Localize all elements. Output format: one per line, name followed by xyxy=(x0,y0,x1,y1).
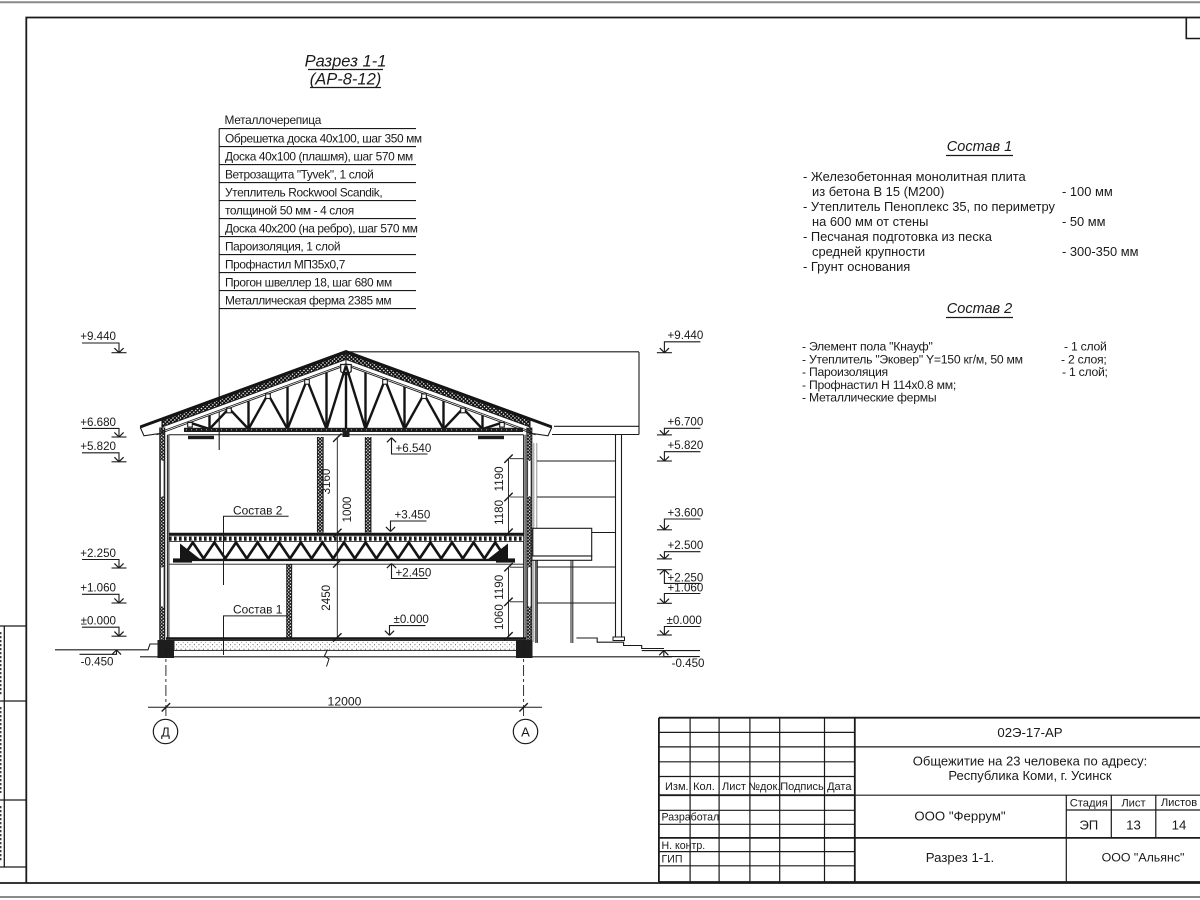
svg-text:1190: 1190 xyxy=(493,575,506,600)
svg-text:+2.250: +2.250 xyxy=(80,547,116,560)
svg-text:-0.450: -0.450 xyxy=(81,655,114,668)
svg-text:-0.450: -0.450 xyxy=(672,657,705,670)
svg-text:ООО "Альянс": ООО "Альянс" xyxy=(1102,851,1185,865)
svg-text:- Железобетонная монолитная п: - Железобетонная монолитная плита xyxy=(803,169,1027,184)
svg-text:№док.: №док. xyxy=(748,781,780,793)
svg-text:Дата: Дата xyxy=(827,781,852,793)
svg-text:+6.700: +6.700 xyxy=(668,416,704,429)
svg-text:Разрез 1-1.: Разрез 1-1. xyxy=(926,850,994,865)
svg-text:13: 13 xyxy=(1126,818,1141,833)
svg-text:Подпись: Подпись xyxy=(780,781,824,793)
svg-text:02Э-17-АР: 02Э-17-АР xyxy=(997,725,1062,740)
svg-text:+9.440: +9.440 xyxy=(80,330,116,343)
svg-text:Доска 40х200 (на ребро), шаг 5: Доска 40х200 (на ребро), шаг 570 мм xyxy=(225,221,418,235)
svg-text:Лист: Лист xyxy=(722,781,746,793)
svg-text:ЭП: ЭП xyxy=(1079,818,1098,833)
svg-text:толщиной 50 мм - 4 слоя: толщиной 50 мм - 4 слоя xyxy=(225,203,354,217)
svg-text:±0.000: ±0.000 xyxy=(394,613,429,626)
svg-text:Н. контр.: Н. контр. xyxy=(662,840,706,852)
svg-text:+1.060: +1.060 xyxy=(668,582,704,595)
svg-text:12000: 12000 xyxy=(328,695,362,709)
svg-text:- Утеплитель Пеноплекс 35, по: - Утеплитель Пеноплекс 35, по периметру xyxy=(803,199,1056,214)
svg-text:Профнастил МП35х0,7: Профнастил МП35х0,7 xyxy=(225,257,346,271)
svg-text:Утеплитель Rockwool Scandik,: Утеплитель Rockwool Scandik, xyxy=(225,185,382,199)
svg-text:Лист: Лист xyxy=(1121,798,1145,810)
svg-text:(АР-8-12): (АР-8-12) xyxy=(310,71,382,89)
svg-text:Доска 40х100 (плашмя), шаг 570: Доска 40х100 (плашмя), шаг 570 мм xyxy=(225,149,413,163)
svg-text:из бетона В 15 (М200): из бетона В 15 (М200) xyxy=(812,184,944,199)
svg-text:Изм.: Изм. xyxy=(665,781,689,793)
svg-text:1180: 1180 xyxy=(493,500,506,525)
svg-text:Д: Д xyxy=(161,724,170,739)
svg-text:2450: 2450 xyxy=(320,585,333,611)
svg-text:Обрешетка доска 40х100, шаг 35: Обрешетка доска 40х100, шаг 350 мм xyxy=(225,131,422,145)
svg-text:+2.500: +2.500 xyxy=(668,539,704,552)
svg-text:Разработал: Разработал xyxy=(662,812,720,824)
svg-text:Листов: Листов xyxy=(1161,797,1197,809)
svg-text:+3.600: +3.600 xyxy=(668,506,704,519)
svg-text:Металлическая ферма 2385 мм: Металлическая ферма 2385 мм xyxy=(225,293,391,307)
svg-text:Общежитие на 23 человека по ад: Общежитие на 23 человека по адресу: xyxy=(913,754,1147,769)
svg-text:Прогон швеллер 18, шаг 680 мм: Прогон швеллер 18, шаг 680 мм xyxy=(225,275,392,289)
svg-text:+9.440: +9.440 xyxy=(668,329,704,342)
svg-text:Состав 2: Состав 2 xyxy=(233,504,283,518)
svg-text:- 1 слой;: - 1 слой; xyxy=(1062,365,1108,379)
svg-text:средней крупности: средней крупности xyxy=(812,244,925,259)
svg-text:Кол.: Кол. xyxy=(693,781,715,793)
svg-text:Состав 1: Состав 1 xyxy=(233,603,283,617)
svg-text:±0.000: ±0.000 xyxy=(81,615,116,628)
svg-text:Разрез 1-1: Разрез 1-1 xyxy=(305,53,387,71)
svg-text:ООО "Феррум": ООО "Феррум" xyxy=(914,809,1006,824)
svg-text:1060: 1060 xyxy=(493,604,506,630)
svg-text:- Грунт основания: - Грунт основания xyxy=(803,259,910,274)
svg-text:+6.680: +6.680 xyxy=(80,416,116,429)
svg-text:14: 14 xyxy=(1172,818,1187,833)
svg-text:- Металлические фермы: - Металлические фермы xyxy=(802,391,936,405)
svg-text:+5.820: +5.820 xyxy=(668,439,704,452)
svg-text:Состав 1: Состав 1 xyxy=(947,139,1012,155)
svg-text:±0.000: ±0.000 xyxy=(667,614,702,627)
svg-text:3160: 3160 xyxy=(320,469,333,495)
svg-text:- 300-350 мм: - 300-350 мм xyxy=(1062,244,1139,259)
svg-text:1000: 1000 xyxy=(341,497,354,523)
svg-text:- 50 мм: - 50 мм xyxy=(1062,214,1106,229)
svg-text:+5.820: +5.820 xyxy=(80,440,116,453)
svg-text:1190: 1190 xyxy=(493,466,506,491)
svg-text:- Песчаная подготовка из песка: - Песчаная подготовка из песка xyxy=(803,229,993,244)
svg-text:Металлочерепица: Металлочерепица xyxy=(225,113,322,127)
svg-text:Ветрозащита "Tyvek", 1 слой: Ветрозащита "Tyvek", 1 слой xyxy=(225,167,373,181)
svg-text:+2.450: +2.450 xyxy=(396,566,432,579)
svg-text:- 100 мм: - 100 мм xyxy=(1062,184,1113,199)
svg-text:ГИП: ГИП xyxy=(662,854,683,866)
svg-text:Пароизоляция, 1 слой: Пароизоляция, 1 слой xyxy=(225,239,340,253)
svg-text:на 600 мм от стены: на 600 мм от стены xyxy=(812,214,928,229)
svg-text:Состав 2: Состав 2 xyxy=(947,301,1012,317)
svg-text:Республика Коми, г. Усинск: Республика Коми, г. Усинск xyxy=(948,768,1111,783)
svg-text:Стадия: Стадия xyxy=(1070,798,1108,810)
svg-text:+1.060: +1.060 xyxy=(80,582,116,595)
svg-text:А: А xyxy=(521,724,530,739)
svg-text:+6.540: +6.540 xyxy=(396,442,432,455)
svg-text:+3.450: +3.450 xyxy=(395,509,431,522)
